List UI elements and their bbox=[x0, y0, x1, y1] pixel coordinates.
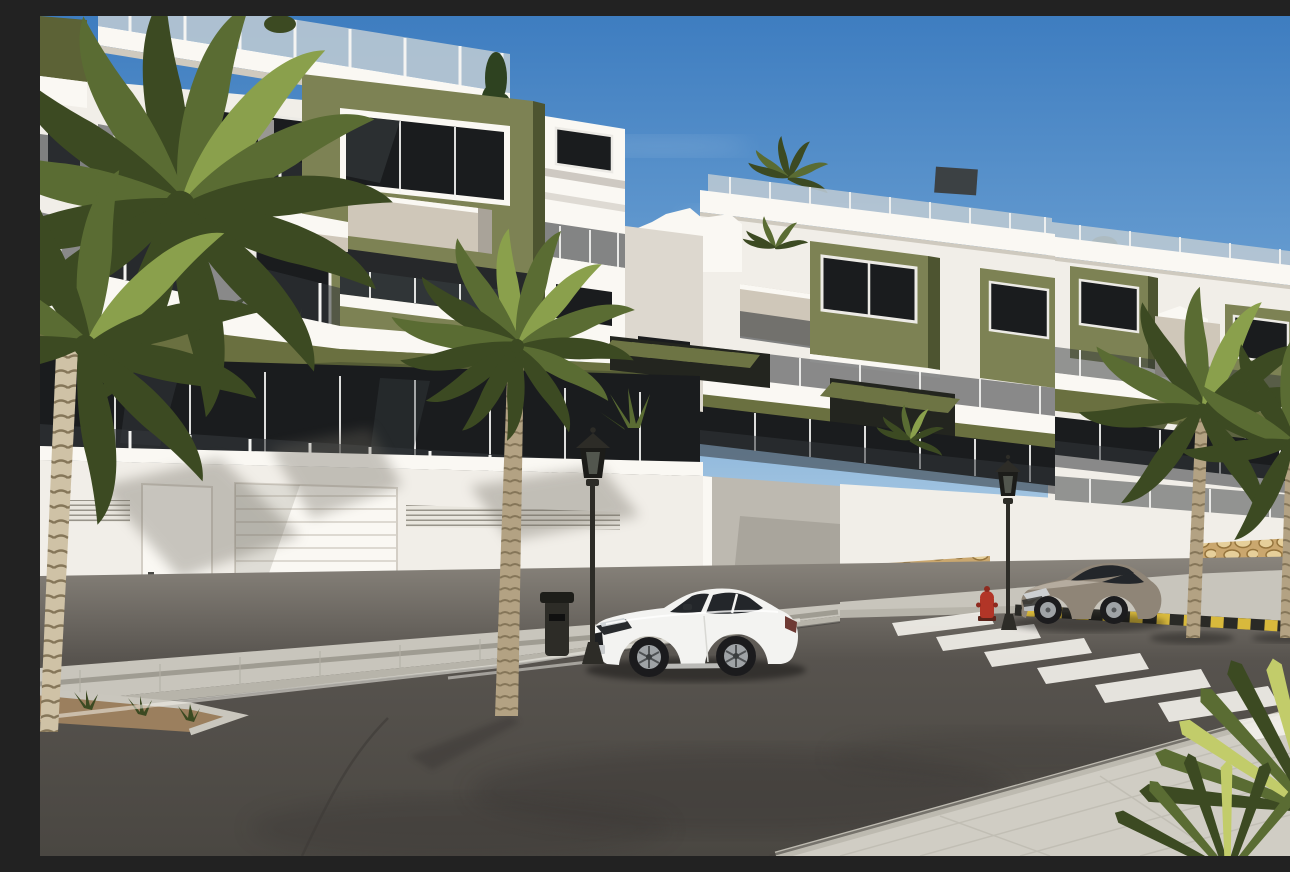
wheel bbox=[629, 637, 669, 677]
litter-bin bbox=[540, 592, 574, 656]
architectural-render-photo bbox=[40, 16, 1290, 856]
wheel bbox=[716, 636, 756, 676]
